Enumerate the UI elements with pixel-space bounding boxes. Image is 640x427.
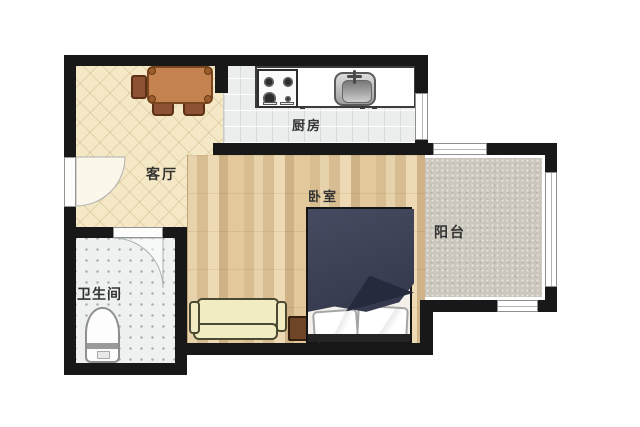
wall-segment xyxy=(64,363,187,375)
counter-handle xyxy=(372,106,377,109)
wall-segment xyxy=(175,227,187,375)
toilet-flush-button xyxy=(97,351,110,359)
bathroom-label: 卫生间 xyxy=(77,288,122,302)
sofa-armrest xyxy=(189,301,200,334)
balcony-window-bottom xyxy=(497,300,538,312)
table-corner-knob xyxy=(148,95,156,103)
table-corner-knob xyxy=(148,67,156,75)
kitchen-window xyxy=(415,93,428,140)
floor-plan: 客厅 厨房 卧室 阳台 卫生间 xyxy=(0,0,640,427)
stove-burner xyxy=(264,77,274,87)
bedroom-label: 卧室 xyxy=(308,191,338,204)
wall-segment xyxy=(175,343,433,355)
stove-controls xyxy=(280,102,294,105)
sofa xyxy=(188,297,288,342)
table-corner-knob xyxy=(204,95,212,103)
balcony-label: 阳台 xyxy=(434,226,466,240)
wall-segment xyxy=(64,55,428,66)
counter-handle xyxy=(360,106,365,109)
stove-controls xyxy=(263,102,277,105)
sofa-seat xyxy=(197,298,279,326)
entrance-door-leaf xyxy=(64,157,76,207)
wall-segment xyxy=(64,55,76,157)
balcony-window-top xyxy=(433,143,487,155)
toilet xyxy=(85,307,120,363)
double-bed xyxy=(306,207,412,344)
stove-burner xyxy=(283,77,293,87)
counter-handle xyxy=(300,106,305,109)
dining-table xyxy=(147,66,213,104)
sofa-armrest xyxy=(276,301,287,332)
kitchen-label: 厨房 xyxy=(292,120,322,133)
sofa-front xyxy=(193,323,278,340)
balcony-window-right xyxy=(545,172,557,287)
wall-segment xyxy=(64,227,113,238)
wall-segment xyxy=(415,55,428,93)
wall-segment xyxy=(545,143,557,172)
living-room-label: 客厅 xyxy=(146,168,178,182)
table-corner-knob xyxy=(204,67,212,75)
wall-segment xyxy=(213,143,433,155)
wall-segment xyxy=(538,300,557,312)
dining-chair xyxy=(131,75,147,99)
sink-basin xyxy=(342,80,372,103)
faucet-handle-icon xyxy=(347,75,362,78)
wall-segment xyxy=(215,55,228,93)
toilet-tank-line xyxy=(87,343,118,349)
gas-stove xyxy=(257,69,298,108)
bathroom-door-leaf xyxy=(113,227,163,238)
bed-headboard xyxy=(308,334,410,342)
